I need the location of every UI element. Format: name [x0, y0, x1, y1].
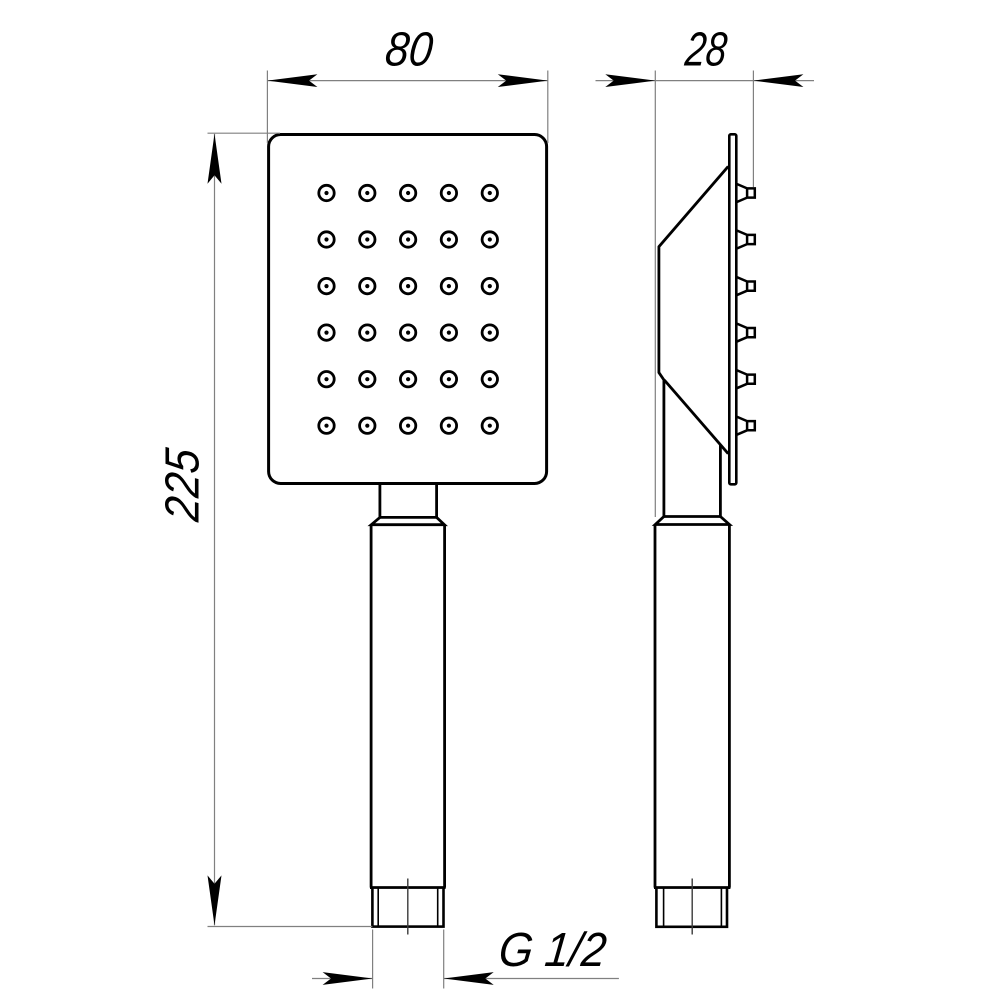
svg-text:28: 28 [682, 23, 730, 77]
svg-text:225: 225 [156, 446, 210, 525]
svg-text:G 1/2: G 1/2 [496, 923, 609, 977]
svg-text:80: 80 [383, 23, 436, 77]
